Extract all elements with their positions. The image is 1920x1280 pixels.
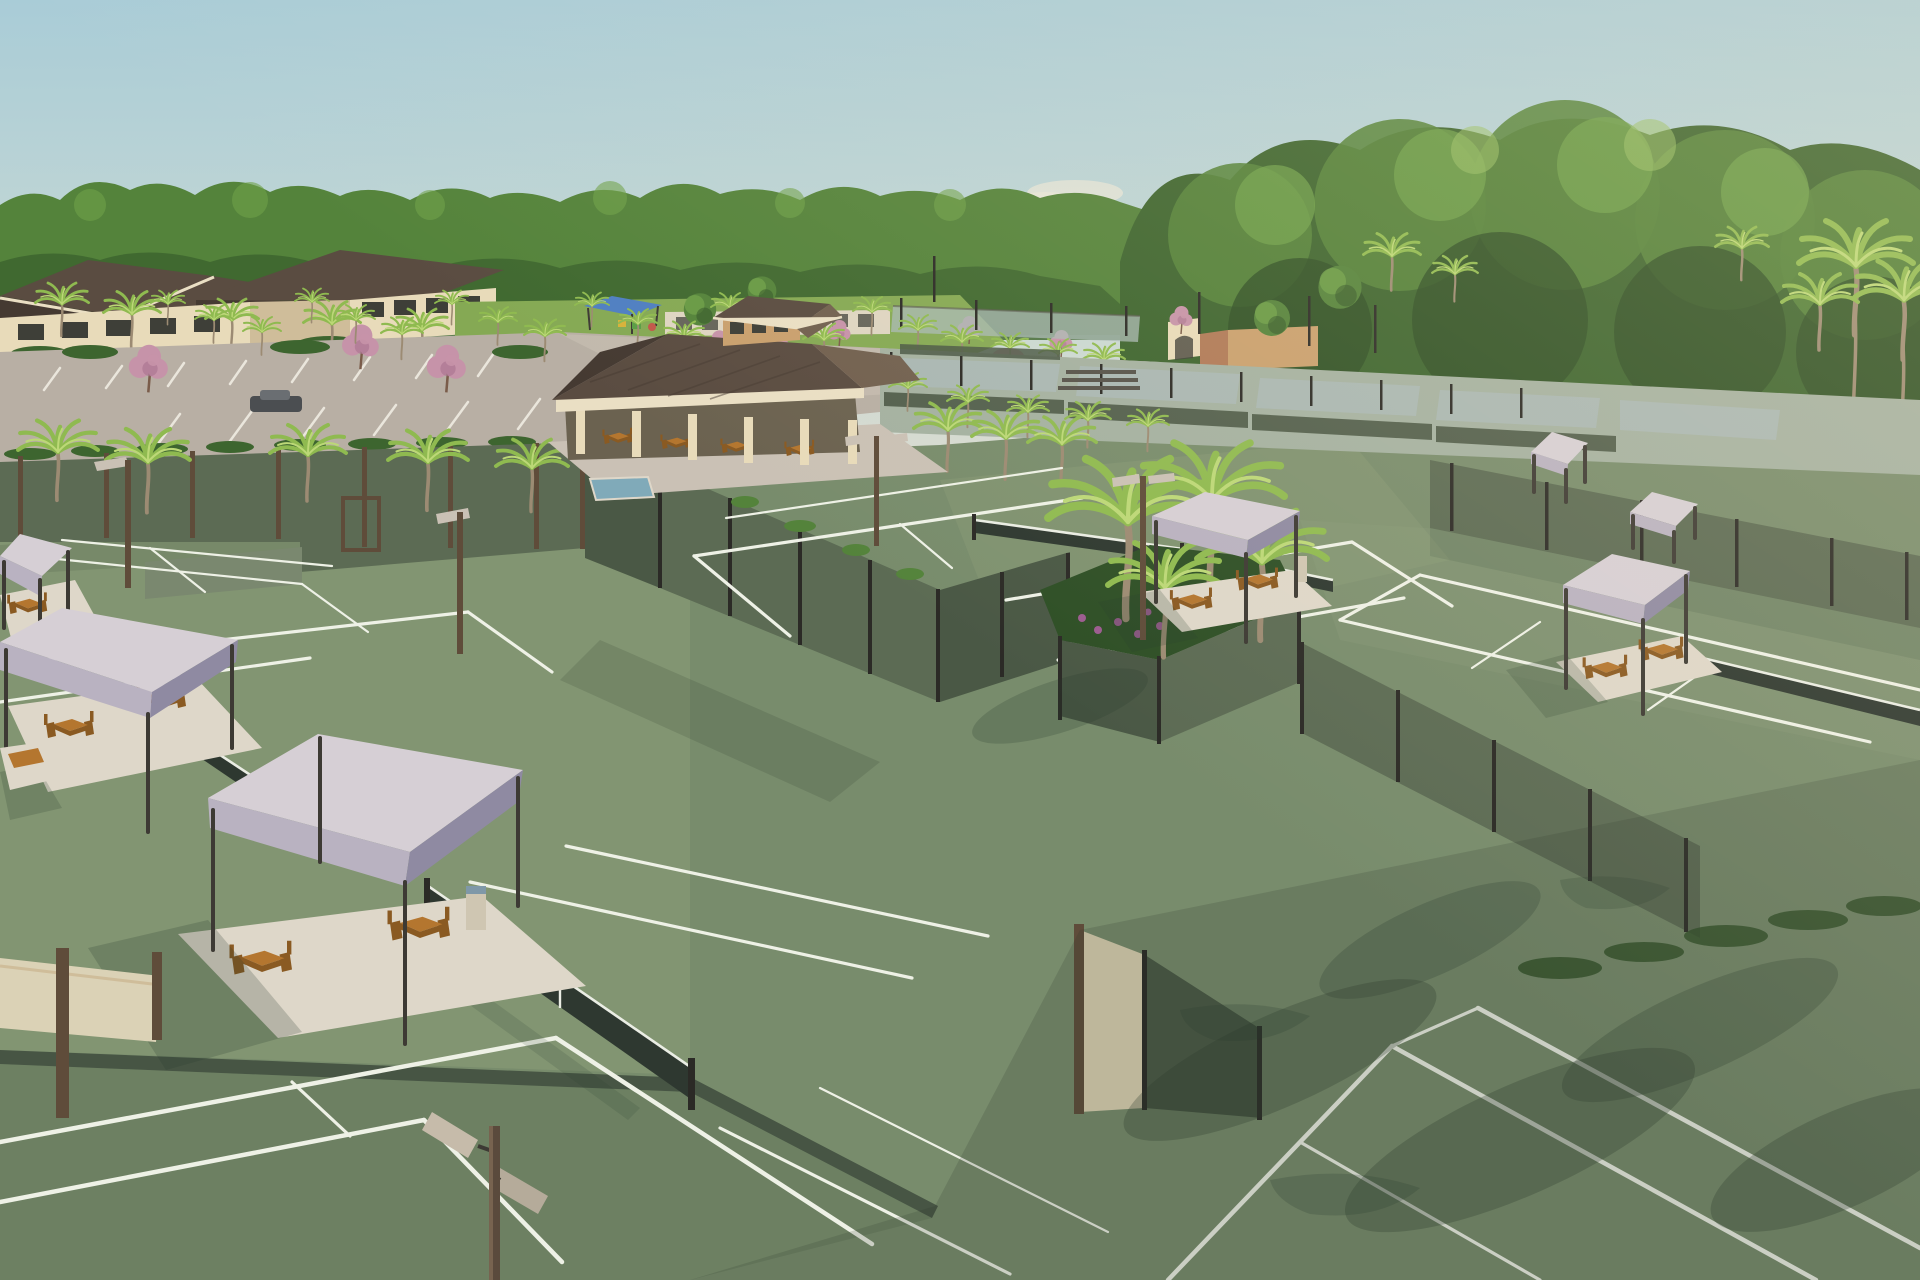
aerial-rendering [0, 0, 1920, 1280]
sunlight-overlay [0, 0, 1920, 1280]
